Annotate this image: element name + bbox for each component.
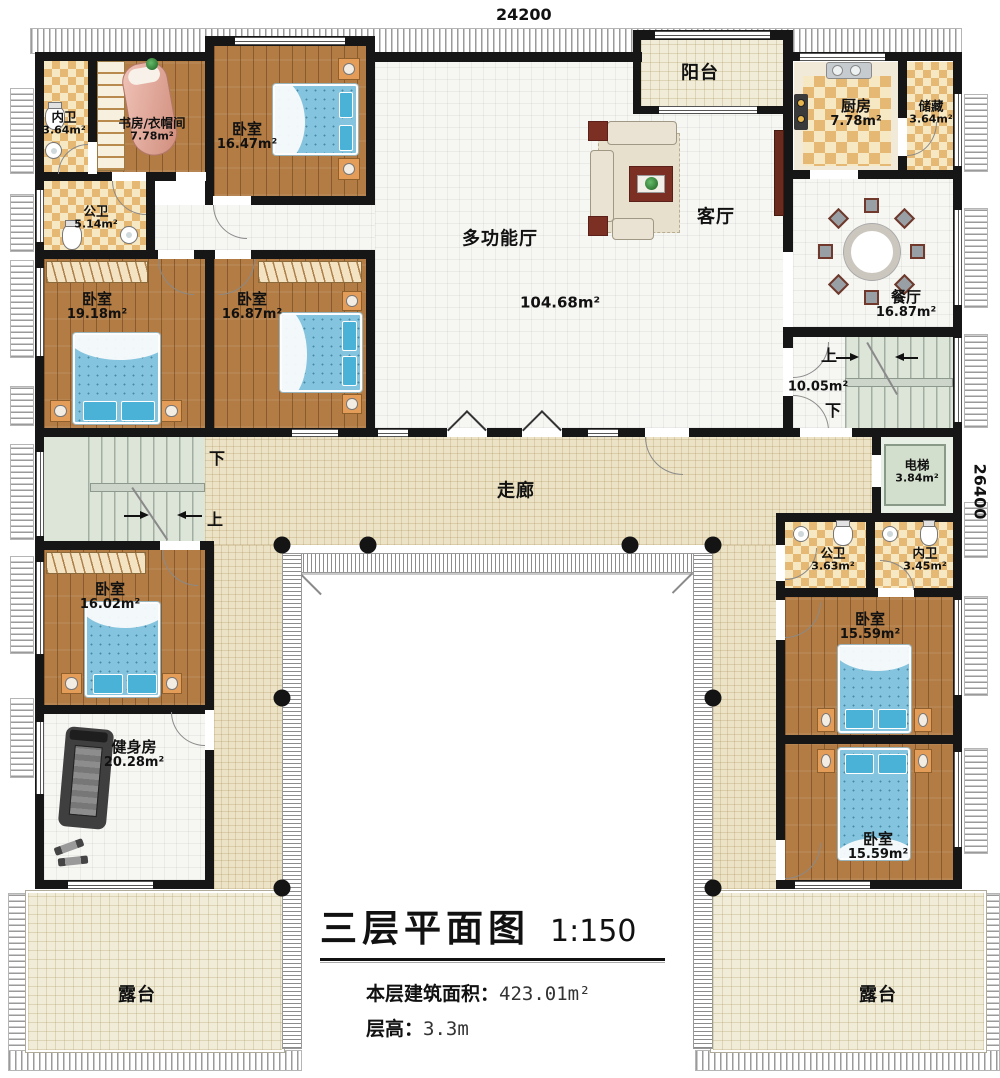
wall [366, 36, 375, 205]
sink-bowl [850, 65, 861, 76]
room-name: 走廊 [497, 482, 535, 503]
corridor-floor [713, 545, 776, 889]
nightstand [338, 158, 360, 180]
room-name: 健身房 [111, 739, 156, 756]
wall [785, 735, 962, 744]
room-area: 5.14m² [74, 219, 117, 232]
floor-height-value: 3.3m [423, 1018, 469, 1040]
wall [205, 250, 214, 437]
terrace-door [795, 881, 870, 889]
stair-arrow [895, 353, 904, 361]
roof-eave [30, 28, 962, 54]
dining-chair [864, 198, 879, 213]
title-underline [320, 958, 665, 963]
door-opening [215, 250, 251, 259]
floor-area-label: 本层建筑面积： [366, 983, 499, 1005]
wall [205, 36, 214, 205]
stair-arrow [140, 511, 149, 519]
window [954, 338, 962, 422]
pillow [93, 674, 123, 694]
roof-eave [695, 1050, 1000, 1071]
door-opening [522, 428, 562, 437]
room-name: 卧室 [232, 121, 262, 138]
nightstand [162, 673, 182, 694]
door-opening [776, 545, 785, 581]
door-opening [898, 118, 907, 156]
sofa [590, 150, 614, 222]
door-opening [810, 170, 858, 179]
title-row: 三层平面图 1:150 [320, 898, 665, 952]
room-area-hall: 104.68m² [520, 294, 600, 311]
door-opening [776, 600, 785, 640]
room-name: 露台 [859, 986, 897, 1007]
bed [73, 333, 160, 424]
courtyard-corner-line [672, 573, 693, 594]
dining-chair [818, 244, 833, 259]
terrace-floor [713, 893, 984, 1050]
room-label-balcony: 阳台 [681, 64, 719, 85]
room-area: 3.63m² [811, 561, 854, 574]
terrace-floor [28, 893, 282, 1050]
courtyard-railing [282, 553, 713, 573]
treadmill-belt [69, 745, 103, 817]
roof-eave [984, 893, 1000, 1071]
floor-area-line: 本层建筑面积：423.01m² [366, 979, 665, 1006]
wardrobe [258, 261, 362, 283]
railing-post [705, 537, 722, 554]
room-label-dining: 餐厅 16.87m² [876, 289, 936, 321]
roof-eave [10, 194, 34, 252]
dimension-top: 24200 [496, 5, 552, 24]
window [36, 190, 44, 242]
room-label-elevator: 电梯 3.84m² [895, 458, 938, 485]
room-area: 19.18m² [67, 308, 127, 323]
bed-sheet [273, 84, 305, 155]
roof-eave [964, 334, 988, 428]
stair-up-label: 上 [207, 511, 223, 529]
wall [633, 36, 641, 114]
stair-down-label: 下 [209, 450, 225, 468]
door-opening [213, 196, 251, 205]
room-name: 电梯 [904, 458, 929, 472]
roof-eave [964, 596, 988, 696]
pillow [878, 709, 907, 729]
room-area: 3.84m² [895, 473, 938, 486]
roof-eave [10, 88, 34, 174]
room-area: 3.45m² [903, 561, 946, 574]
room-area: 104.68m² [520, 294, 600, 311]
door-opening [160, 541, 200, 550]
roof-eave [10, 698, 34, 778]
stair-direction: 上 [207, 511, 223, 529]
window [235, 37, 345, 45]
pillow [845, 754, 874, 774]
stair-arrow-line [836, 357, 850, 359]
plan-scale: 1:150 [550, 914, 636, 949]
sink [793, 526, 809, 542]
toilet [920, 524, 938, 546]
nightstand [914, 708, 932, 732]
wall [366, 52, 642, 62]
room-name: 阳台 [681, 64, 719, 85]
nightstand [817, 749, 835, 773]
wall [866, 522, 875, 588]
plant [645, 177, 658, 190]
pillow [339, 125, 353, 151]
room-name: 多功能厅 [462, 230, 538, 251]
roof-eave [10, 556, 34, 654]
room-label-terrace-left: 露台 [118, 986, 156, 1007]
room-area: 16.47m² [217, 138, 277, 153]
room-label-kitchen: 厨房 7.78m² [830, 98, 881, 130]
room-label-study: 书房/衣帽间 7.78m² [118, 116, 185, 143]
room-name: 公卫 [820, 546, 845, 560]
pillow [845, 709, 874, 729]
courtyard-corner-line [301, 574, 322, 595]
wall [146, 172, 155, 259]
bed-sheet [838, 645, 911, 671]
treadmill-console [69, 729, 108, 742]
window [954, 210, 962, 305]
room-label-hall: 多功能厅 [462, 230, 538, 251]
stair-arrow-line [124, 515, 140, 517]
bed [273, 84, 358, 155]
wall [783, 30, 793, 252]
room-label-public-bath-514: 公卫 5.14m² [74, 204, 117, 231]
roof-eave [964, 208, 988, 308]
window [36, 452, 44, 536]
stair-direction: 下 [825, 402, 841, 420]
room-area: 7.78m² [830, 115, 881, 130]
nightstand [161, 400, 182, 422]
stove-burner [797, 115, 805, 123]
wall [757, 106, 784, 114]
dimension-right: 26400 [970, 464, 989, 520]
room-area: 3.64m² [909, 114, 952, 127]
stair-arrow-line [904, 357, 918, 359]
pillow [342, 356, 357, 386]
corridor-floor [214, 545, 282, 889]
nightstand [342, 291, 362, 311]
bed-sheet [73, 333, 160, 360]
wall [783, 327, 962, 337]
side-table [588, 216, 608, 236]
hall-floor [375, 62, 783, 428]
stair-direction: 下 [209, 450, 225, 468]
room-label-public-bath-363: 公卫 3.63m² [811, 546, 854, 573]
door-opening [447, 428, 487, 437]
nightstand [817, 708, 835, 732]
roof-eave [8, 1050, 302, 1071]
wall [785, 588, 962, 597]
room-label-bedroom-1918: 卧室 19.18m² [67, 291, 127, 323]
floor-height-label: 层高： [366, 1018, 423, 1040]
room-area: 7.78m² [130, 131, 173, 144]
armchair [612, 218, 654, 240]
room-area: 15.59m² [840, 628, 900, 643]
railing-post [705, 690, 722, 707]
room-name: 公卫 [83, 204, 108, 218]
room-name: 内卫 [912, 546, 937, 560]
sink-bowl [832, 65, 843, 76]
door-opening [645, 428, 689, 437]
room-label-bedroom-1559a: 卧室 15.59m² [840, 611, 900, 643]
floor-height-line: 层高：3.3m [366, 1014, 665, 1041]
room-name: 卧室 [237, 291, 267, 308]
pillow [121, 401, 155, 421]
nightstand [61, 673, 82, 694]
roof-eave [964, 748, 988, 854]
nightstand [338, 58, 360, 80]
room-area: 16.87m² [876, 306, 936, 321]
room-label-corridor: 走廊 [497, 482, 535, 503]
room-name: 储藏 [918, 99, 943, 113]
room-area: 16.02m² [80, 598, 140, 613]
room-area: 16.87m² [222, 308, 282, 323]
nightstand [914, 749, 932, 773]
room-label-bedroom-1687: 卧室 16.87m² [222, 291, 282, 323]
window [954, 752, 962, 847]
window [36, 562, 44, 654]
stair-rail [845, 378, 953, 387]
room-area: 15.59m² [848, 848, 908, 863]
bed [838, 645, 911, 733]
room-name: 卧室 [863, 831, 893, 848]
floor-area-value: 423.01m² [499, 983, 591, 1005]
window [292, 429, 338, 437]
room-label-storage: 储藏 3.64m² [909, 99, 952, 126]
stair-up-label: 上 [821, 347, 837, 365]
window [954, 600, 962, 695]
room-label-gym: 健身房 20.28m² [104, 739, 164, 771]
door-opening [158, 250, 194, 259]
courtyard-edge [302, 573, 693, 575]
sink [45, 142, 62, 159]
room-name: 露台 [118, 986, 156, 1007]
stair-rail [90, 483, 205, 492]
roof-eave [964, 94, 988, 172]
room-area: 3.64m² [42, 125, 85, 138]
dining-table [844, 224, 900, 280]
door-opening [176, 172, 206, 181]
door-opening [112, 172, 146, 181]
room-name: 卧室 [855, 611, 885, 628]
railing-post [274, 690, 291, 707]
room-label-bedroom-1559b: 卧室 15.59m² [848, 831, 908, 863]
railing-post [360, 537, 377, 554]
stair-direction: 上 [821, 347, 837, 365]
door-opening [800, 428, 852, 437]
room-name: 卧室 [95, 581, 125, 598]
railing-post [274, 537, 291, 554]
window [954, 94, 962, 166]
room-label-terrace-right: 露台 [859, 986, 897, 1007]
title-block: 三层平面图 1:150 本层建筑面积：423.01m² 层高：3.3m [320, 898, 665, 1041]
wardrobe [46, 261, 148, 283]
corridor-floor [205, 437, 872, 545]
stair-area: 10.05m² [788, 381, 848, 396]
pillow [83, 401, 117, 421]
room-label-bath-345: 内卫 3.45m² [903, 546, 946, 573]
hall-connector-floor [155, 205, 375, 250]
sink [882, 526, 898, 542]
nightstand [342, 394, 362, 414]
roof-eave [10, 444, 34, 540]
roof-eave [10, 386, 34, 426]
pillow [339, 92, 353, 118]
stair-arrow [177, 511, 186, 519]
bed [280, 313, 362, 392]
window [800, 53, 885, 61]
courtyard-railing [282, 553, 302, 1049]
tv-cabinet [774, 130, 784, 216]
bed [85, 602, 160, 697]
room-name: 卧室 [82, 291, 112, 308]
stair-arrow-line [186, 515, 202, 517]
door-opening [205, 710, 214, 750]
room-name: 餐厅 [891, 289, 921, 306]
stair-arrow [850, 353, 859, 361]
room-label-living: 客厅 [697, 208, 735, 229]
room-name: 厨房 [841, 98, 871, 115]
roof-eave [10, 260, 34, 358]
pillow [878, 754, 907, 774]
sofa [607, 121, 677, 145]
floor-plan: 内卫 3.64m² 书房/衣帽间 7.78m² 卧室 16.47m² 公卫 5.… [0, 0, 1000, 1078]
stove-burner [797, 99, 805, 107]
sink [120, 226, 138, 244]
courtyard-railing [693, 553, 713, 1049]
window [588, 429, 618, 437]
nightstand [50, 400, 71, 422]
window [36, 722, 44, 794]
room-name: 客厅 [697, 208, 735, 229]
room-label-bedroom-1602: 卧室 16.02m² [80, 581, 140, 613]
door-opening [872, 455, 881, 487]
roof-eave [8, 893, 28, 1071]
room-area: 20.28m² [104, 756, 164, 771]
room-label-bath-top-left: 内卫 3.64m² [42, 110, 85, 137]
plan-title: 三层平面图 [320, 898, 530, 952]
railing-post [274, 880, 291, 897]
balcony-slider [659, 106, 757, 114]
door-opening [88, 142, 97, 174]
stair-area-label: 10.05m² [788, 381, 848, 396]
window [655, 31, 770, 39]
railing-post [622, 537, 639, 554]
plant [146, 58, 158, 70]
pillow [127, 674, 157, 694]
room-label-bedroom-1647: 卧室 16.47m² [217, 121, 277, 153]
window [378, 429, 408, 437]
dining-chair [910, 244, 925, 259]
pillow [342, 321, 357, 351]
side-table [588, 121, 608, 141]
room-name: 内卫 [51, 110, 76, 124]
terrace-door [68, 881, 153, 889]
toilet [833, 524, 853, 546]
room-name: 书房/衣帽间 [118, 116, 185, 130]
wall [366, 250, 375, 437]
window [36, 268, 44, 356]
bed-sheet [280, 313, 307, 392]
stair-down-label: 下 [825, 402, 841, 420]
wardrobe [46, 552, 146, 574]
wall [35, 52, 210, 61]
railing-post [705, 880, 722, 897]
door-opening [776, 840, 785, 880]
